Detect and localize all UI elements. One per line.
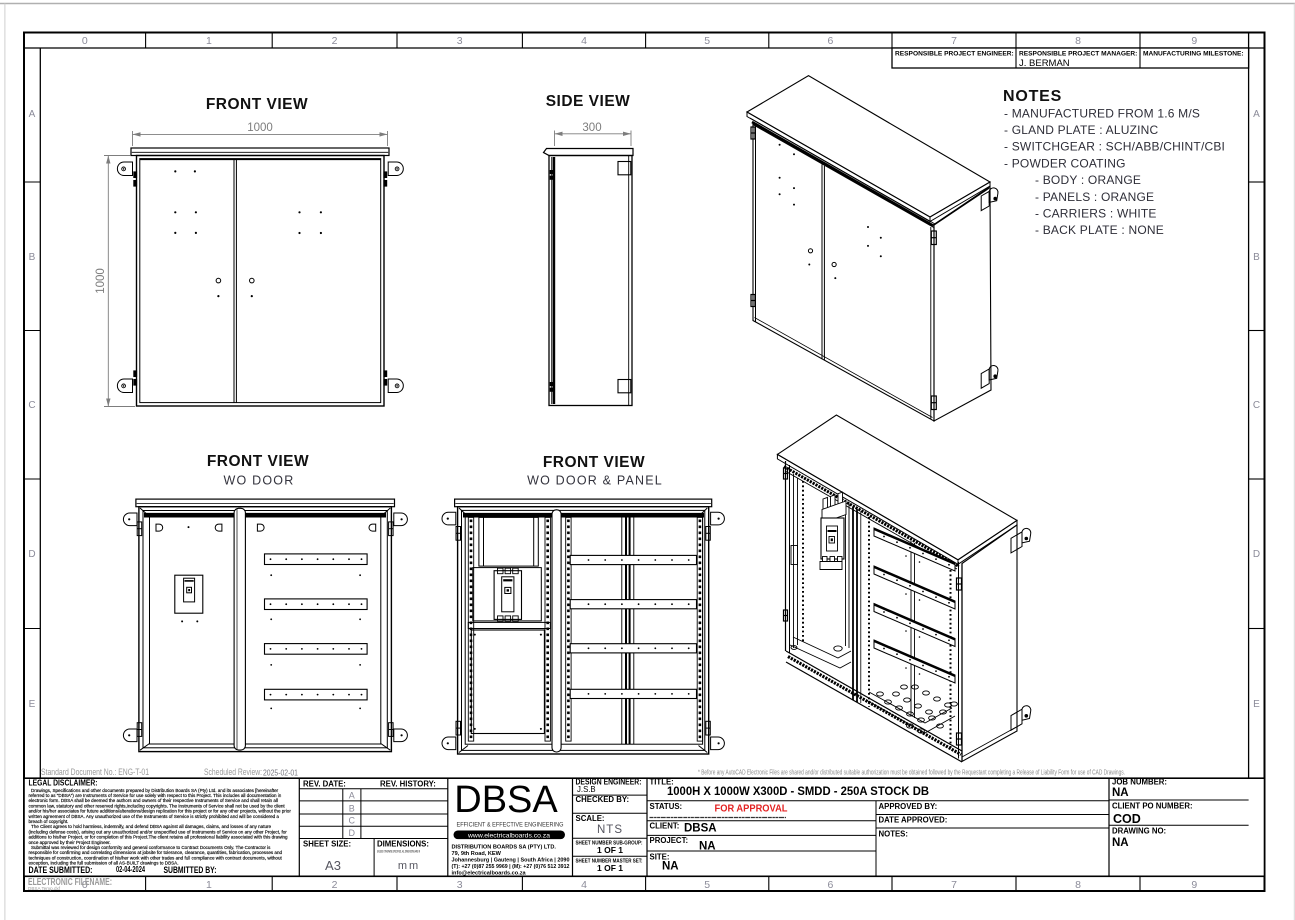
svg-text:C: C	[1253, 400, 1260, 411]
svg-text:B: B	[1253, 252, 1260, 263]
svg-text:- BODY : ORANGE: - BODY : ORANGE	[1035, 173, 1141, 187]
svg-text:5: 5	[704, 35, 710, 47]
svg-text:02-04-2024: 02-04-2024	[116, 865, 145, 874]
svg-text:C: C	[28, 400, 35, 411]
svg-text:COD: COD	[1113, 812, 1141, 826]
svg-text:A: A	[29, 109, 36, 120]
svg-text:A: A	[349, 790, 355, 800]
svg-text:info@electricalboards.co.za: info@electricalboards.co.za	[452, 871, 527, 877]
svg-text:A: A	[1253, 109, 1260, 120]
svg-text:2: 2	[332, 879, 338, 891]
svg-text:RESPONSIBLE PROJECT MANAGER:: RESPONSIBLE PROJECT MANAGER:	[1019, 51, 1137, 58]
svg-text:79, 9th Road, KEW: 79, 9th Road, KEW	[452, 851, 502, 857]
svg-text:1: 1	[206, 879, 212, 891]
svg-text:300: 300	[582, 122, 601, 134]
svg-text:NTS: NTS	[597, 824, 623, 836]
svg-text:C: C	[349, 816, 356, 826]
svg-text:D: D	[28, 549, 35, 560]
svg-text:E: E	[1253, 699, 1260, 710]
svg-text:SHEET SIZE:: SHEET SIZE:	[303, 840, 351, 849]
svg-text:RESPONSIBLE PROJECT ENGINEER:: RESPONSIBLE PROJECT ENGINEER:	[895, 51, 1014, 58]
svg-text:1000: 1000	[247, 122, 273, 134]
svg-text:- GLAND PLATE : ALUZINC: - GLAND PLATE : ALUZINC	[1004, 123, 1159, 137]
svg-text:- CARRIERS : WHITE: - CARRIERS : WHITE	[1035, 207, 1157, 221]
svg-text:1000H X 1000W X300D - SMDD - 2: 1000H X 1000W X300D - SMDD - 250A STOCK …	[667, 784, 929, 798]
svg-text:E: E	[29, 699, 36, 710]
svg-text:- BACK PLATE : NONE: - BACK PLATE : NONE	[1035, 223, 1164, 237]
svg-text:A3: A3	[325, 858, 341, 873]
svg-text:8: 8	[1075, 35, 1081, 47]
svg-text:CHECKED BY:: CHECKED BY:	[576, 795, 630, 804]
svg-text:DBSA: DBSA	[684, 823, 717, 835]
svg-text:9: 9	[1191, 35, 1197, 47]
svg-text:SUBMITTED BY:: SUBMITTED BY:	[164, 865, 217, 875]
svg-text:Scheduled Review:: Scheduled Review:	[204, 767, 262, 777]
svg-text:- SWITCHGEAR : SCH/ABB/CHINT/C: - SWITCHGEAR : SCH/ABB/CHINT/CBI	[1004, 140, 1225, 154]
svg-text:NOTES: NOTES	[1003, 88, 1062, 105]
svg-text:6: 6	[827, 879, 833, 891]
svg-text:(T): +27 (0)87 255 9969 | (M):: (T): +27 (0)87 255 9969 | (M): +27 (0)76…	[452, 864, 570, 870]
svg-text:4: 4	[581, 879, 587, 891]
svg-text:JOB NUMBER:: JOB NUMBER:	[1112, 778, 1167, 787]
svg-text:DBSA Temp.dxf: DBSA Temp.dxf	[28, 886, 61, 891]
svg-text:1: 1	[206, 35, 212, 47]
svg-text:1000: 1000	[95, 268, 107, 294]
svg-text:- PANELS : ORANGE: - PANELS : ORANGE	[1035, 190, 1154, 204]
svg-text:NA: NA	[1112, 837, 1129, 849]
svg-text:mm: mm	[398, 860, 420, 872]
svg-text:* Before any AutoCAD Electron: * Before any AutoCAD Electronic Files ar…	[698, 768, 1125, 777]
svg-text:FRONT VIEW: FRONT VIEW	[543, 454, 645, 471]
svg-text:7: 7	[951, 879, 957, 891]
svg-text:FRONT VIEW: FRONT VIEW	[207, 453, 309, 470]
svg-text:1 OF 1: 1 OF 1	[597, 863, 623, 873]
svg-text:NA: NA	[662, 861, 679, 873]
svg-text:5: 5	[704, 879, 710, 891]
svg-text:FOR APPROVAL: FOR APPROVAL	[715, 804, 788, 815]
svg-text:J.S.B: J.S.B	[577, 785, 596, 794]
svg-text:SIDE VIEW: SIDE VIEW	[546, 93, 631, 110]
svg-text:DBSA: DBSA	[454, 779, 558, 821]
svg-text:WO DOOR & PANEL: WO DOOR & PANEL	[527, 474, 663, 488]
svg-text:MANUFACTURING MILESTONE:: MANUFACTURING MILESTONE:	[1143, 51, 1244, 58]
svg-text:FRONT VIEW: FRONT VIEW	[206, 96, 308, 113]
svg-text:Standard Document No.: ENG-T-0: Standard Document No.: ENG-T-01	[41, 767, 149, 777]
svg-text:J. BERMAN: J. BERMAN	[1019, 58, 1070, 69]
svg-text:CLIENT PO NUMBER:: CLIENT PO NUMBER:	[1112, 802, 1193, 811]
svg-text:Johannesburg | Gauteng | South: Johannesburg | Gauteng | South Africa | …	[452, 858, 570, 864]
svg-text:NOTES:: NOTES:	[879, 830, 908, 839]
svg-text:DIMENSIONS:: DIMENSIONS:	[377, 840, 429, 849]
svg-text:STATUS:: STATUS:	[650, 802, 683, 811]
svg-text:- POWDER COATING: - POWDER COATING	[1004, 156, 1126, 170]
svg-text:DATE SUBMITTED:: DATE SUBMITTED:	[29, 865, 93, 875]
svg-text:DRAWING NO:: DRAWING NO:	[1112, 827, 1166, 836]
svg-text:0: 0	[82, 35, 88, 47]
svg-text:3: 3	[457, 35, 463, 47]
svg-text:PROJECT:: PROJECT:	[650, 836, 689, 845]
svg-text:1 OF 1: 1 OF 1	[597, 845, 623, 855]
svg-text:7: 7	[951, 35, 957, 47]
svg-text:9: 9	[1191, 879, 1197, 891]
svg-text:EFFICIENT & EFFECTIVE ENGINEER: EFFICIENT & EFFECTIVE ENGINEERING	[457, 822, 564, 829]
svg-text:APPROVED BY:: APPROVED BY:	[879, 802, 938, 811]
svg-text:2: 2	[332, 35, 338, 47]
svg-text:8: 8	[1075, 879, 1081, 891]
svg-text:B: B	[349, 803, 355, 813]
svg-text:2025-02-01: 2025-02-01	[263, 769, 298, 778]
svg-text:WO DOOR: WO DOOR	[224, 474, 295, 488]
svg-text:3: 3	[457, 879, 463, 891]
svg-text:REV. HISTORY:: REV. HISTORY:	[380, 779, 436, 788]
svg-text:LEGAL DISCLAIMER:: LEGAL DISCLAIMER:	[29, 778, 98, 788]
svg-text:UNLESS OTHERWISE SPECIFIED, AL: UNLESS OTHERWISE SPECIFIED, ALL DIMENSIO…	[377, 850, 420, 854]
svg-text:D: D	[1253, 549, 1260, 560]
svg-text:DATE APPROVED:: DATE APPROVED:	[879, 816, 948, 825]
svg-text:SCALE:: SCALE:	[576, 814, 605, 823]
svg-text:D: D	[349, 828, 356, 838]
svg-text:REV. DATE:: REV. DATE:	[303, 779, 346, 788]
svg-text:NA: NA	[1112, 787, 1129, 799]
svg-text:DISTRIBUTION BOARDS SA (PTY) L: DISTRIBUTION BOARDS SA (PTY) LTD.	[452, 845, 557, 851]
svg-text:6: 6	[827, 35, 833, 47]
svg-text:CLIENT:: CLIENT:	[650, 822, 680, 831]
svg-text:B: B	[29, 252, 36, 263]
svg-text:- MANUFACTURED FROM 1.6 M/S: - MANUFACTURED FROM 1.6 M/S	[1004, 107, 1200, 121]
svg-text:www.electricalboards.co.za: www.electricalboards.co.za	[467, 832, 550, 839]
svg-text:4: 4	[581, 35, 587, 47]
